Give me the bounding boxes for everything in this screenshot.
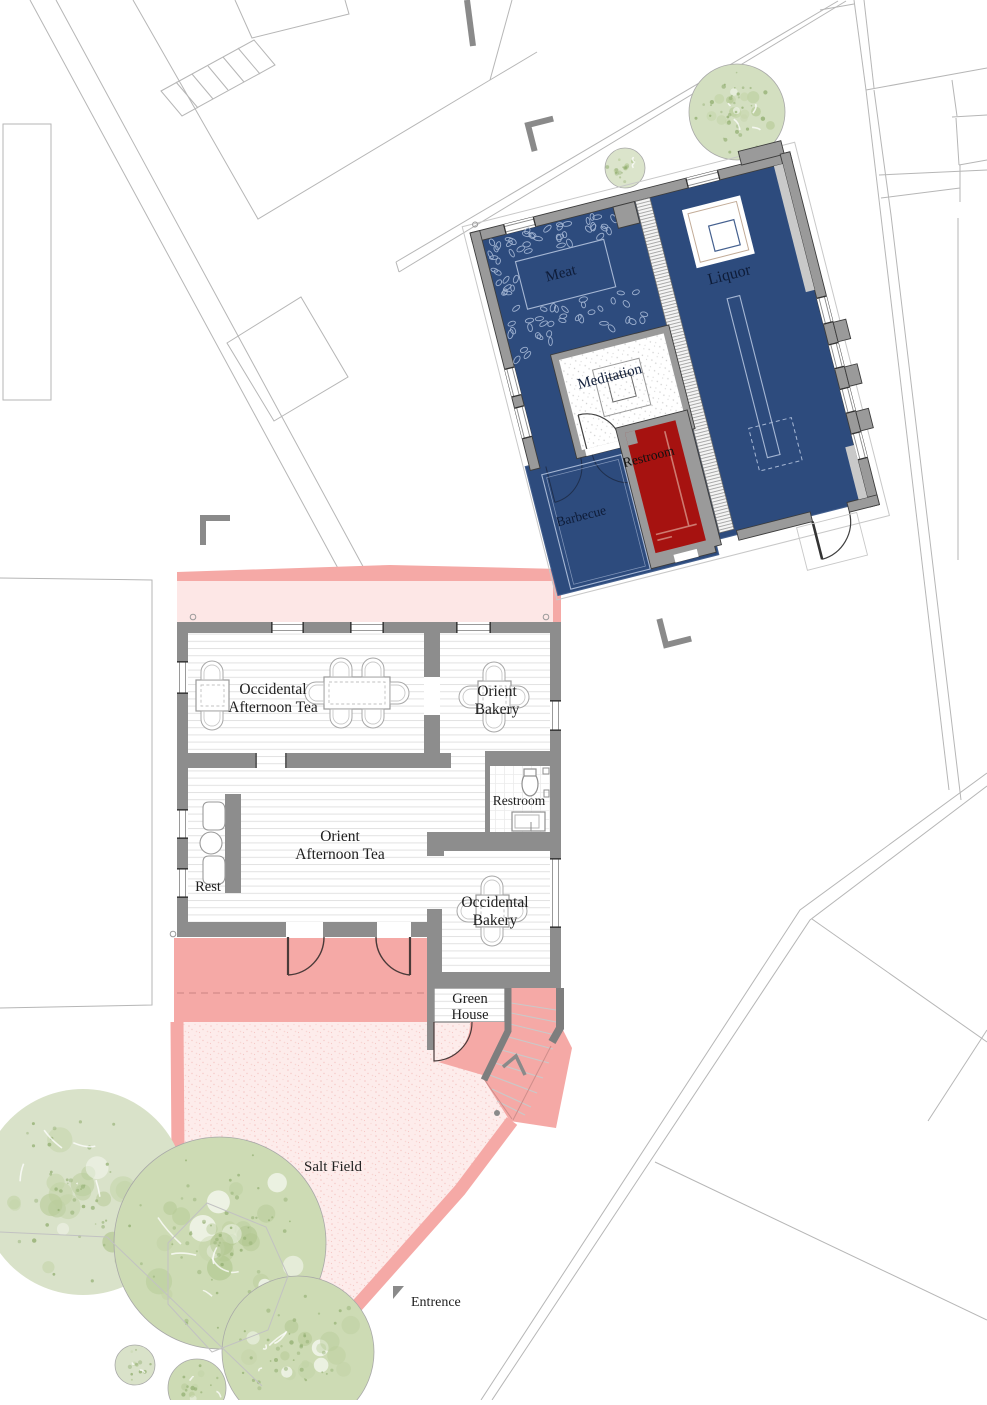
svg-text:Entrence: Entrence [411,1295,461,1310]
svg-text:Bakery: Bakery [473,912,518,929]
svg-text:Afternoon Tea: Afternoon Tea [295,846,385,863]
svg-text:Orient: Orient [477,683,517,700]
svg-text:Afternoon Tea: Afternoon Tea [228,699,318,716]
svg-text:Occidental: Occidental [239,681,306,698]
svg-text:House: House [451,1007,488,1023]
svg-text:Orient: Orient [320,828,360,845]
svg-text:Rest: Rest [195,879,221,895]
svg-text:Bakery: Bakery [475,701,520,718]
svg-text:Salt Field: Salt Field [304,1159,362,1175]
svg-text:Green: Green [452,991,488,1007]
svg-text:Occidental: Occidental [461,894,528,911]
svg-text:Restroom: Restroom [493,793,546,808]
